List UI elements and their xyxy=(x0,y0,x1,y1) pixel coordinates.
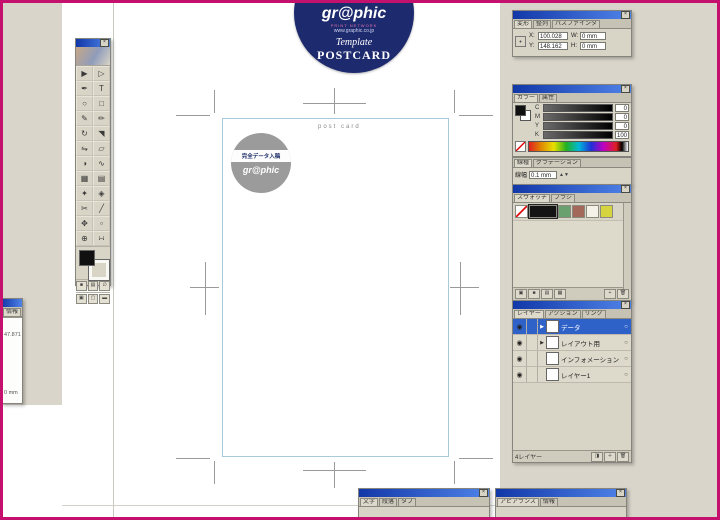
postcard-side-label: post card xyxy=(318,124,361,130)
info-value-2: 0 mm xyxy=(4,390,18,396)
close-icon[interactable]: × xyxy=(616,489,625,497)
stroke-weight-stepper[interactable]: ▲▼ xyxy=(559,172,569,178)
center-trim-mark-right xyxy=(450,287,479,288)
close-icon[interactable]: × xyxy=(621,11,630,19)
postcard-logo-band-text: 完全データ入稿 xyxy=(231,150,291,162)
tool-eyedropper[interactable]: ✦ xyxy=(76,186,93,201)
layer-visibility-eye-icon[interactable]: ◉ xyxy=(513,351,527,366)
stroke-weight-label: 線幅 xyxy=(515,170,527,179)
screen-mode-standard-button[interactable]: ▣ xyxy=(76,294,87,304)
fill-swatch[interactable] xyxy=(79,250,95,266)
channel-label: C xyxy=(535,105,541,111)
badge-product-label: POSTCARD xyxy=(294,49,414,62)
tool-scale[interactable]: ◥ xyxy=(93,126,110,141)
appearance-palette-titlebar[interactable]: × xyxy=(496,489,626,497)
postcard-logo-brand: gr@phic xyxy=(231,165,291,175)
channel-value-field[interactable]: 0 xyxy=(615,113,629,121)
toolbox-banner-image xyxy=(76,47,110,66)
stroke-weight-field[interactable]: 0.1 mm xyxy=(529,171,557,179)
color-spectrum-ramp[interactable] xyxy=(528,141,629,152)
swatches-palette-titlebar[interactable]: × xyxy=(513,185,631,193)
screen-mode-full-menu-button[interactable]: ▢ xyxy=(88,294,99,304)
new-layer-button[interactable]: ＋ xyxy=(604,452,616,462)
delete-swatch-button[interactable]: 🗑 xyxy=(617,289,629,299)
tab-character[interactable]: 文字 xyxy=(360,498,378,506)
layer-name[interactable]: データ xyxy=(561,322,621,332)
center-trim-mark-left xyxy=(190,287,219,288)
channel-label: M xyxy=(535,114,541,120)
close-icon[interactable]: × xyxy=(479,489,488,497)
layer-thumbnail xyxy=(546,336,559,349)
layer-expand-triangle[interactable]: ▶ xyxy=(538,324,546,330)
layer-count-status: 4レイヤー xyxy=(515,452,590,461)
info-palette-fragment: 情報 47.871 0 mm xyxy=(3,298,23,404)
swatch-brown[interactable] xyxy=(572,205,585,218)
layer-target-circle[interactable]: ○ xyxy=(621,372,631,378)
tab-links[interactable]: リンク xyxy=(582,310,606,318)
close-icon[interactable]: × xyxy=(621,85,630,93)
new-swatch-button[interactable]: + xyxy=(604,289,616,299)
channel-slider[interactable] xyxy=(543,131,613,139)
tool-page[interactable]: ▫ xyxy=(93,216,110,231)
layer-lock-cell[interactable] xyxy=(527,367,538,382)
tool-direct-selection[interactable]: ▷ xyxy=(93,66,110,81)
swatch-none[interactable] xyxy=(515,205,528,218)
document-area: post card 完全データ入稿 gr@phic gr@phic PRINT … xyxy=(3,3,717,517)
layer-target-circle[interactable]: ○ xyxy=(621,356,631,362)
layer-lock-cell[interactable] xyxy=(527,351,538,366)
layer-visibility-eye-icon[interactable]: ◉ xyxy=(513,319,527,334)
layer-visibility-eye-icon[interactable]: ◉ xyxy=(513,335,527,350)
trim-mark xyxy=(176,458,210,459)
tool-paintbrush[interactable]: ✏ xyxy=(93,111,110,126)
tab-info-fragment[interactable]: 情報 xyxy=(3,308,21,316)
character-palette: × 文字 段落 タブ xyxy=(358,488,490,517)
channel-value-field[interactable]: 0 xyxy=(615,122,629,130)
tool-pen[interactable]: ✒ xyxy=(76,81,93,96)
tool-graph[interactable]: ▦ xyxy=(76,171,93,186)
layer-thumbnail xyxy=(546,352,559,365)
layer-lock-cell[interactable] xyxy=(527,319,538,334)
show-pattern-swatches-button[interactable]: ▦ xyxy=(554,289,566,299)
color-palette: × カラー 属性 C0M0Y0K100 xyxy=(512,84,632,157)
layer-target-circle[interactable]: ○ xyxy=(621,340,631,346)
swatch-white[interactable] xyxy=(586,205,599,218)
transform-palette: × 変形 整列 パスファインダ X: 100.028 Y: 148.162 W:… xyxy=(512,10,632,57)
tool-paint-bucket[interactable]: ◈ xyxy=(93,186,110,201)
delete-layer-button[interactable]: 🗑 xyxy=(617,452,629,462)
trim-mark xyxy=(176,115,210,116)
show-color-swatches-button[interactable]: ■ xyxy=(528,289,540,299)
close-icon[interactable]: × xyxy=(621,301,630,309)
color-palette-titlebar[interactable]: × xyxy=(513,85,631,93)
stroke-palette: 線種 グラデーション 線幅 0.1 mm ▲▼ xyxy=(512,157,632,185)
swatches-scrollbar[interactable] xyxy=(623,203,631,289)
tool-rectangle[interactable]: □ xyxy=(93,96,110,111)
trim-mark xyxy=(214,461,215,484)
tool-pencil[interactable]: ✎ xyxy=(76,111,93,126)
tab-tabs[interactable]: タブ xyxy=(398,498,416,506)
tab-attributes[interactable]: 属性 xyxy=(539,94,557,102)
layer-expand-triangle[interactable]: ▶ xyxy=(538,340,546,346)
swatch-yellow[interactable] xyxy=(600,205,613,218)
layer-visibility-eye-icon[interactable]: ◉ xyxy=(513,367,527,382)
reference-point-locator[interactable] xyxy=(515,36,526,47)
tab-stroke[interactable]: 線種 xyxy=(514,159,532,167)
center-trim-mark-right xyxy=(460,262,461,315)
color-fill-stroke-indicator[interactable] xyxy=(515,105,531,121)
layer-row[interactable]: ◉▶レイアウト用○ xyxy=(513,335,631,351)
trim-mark xyxy=(459,115,493,116)
tool-gradient[interactable]: ▤ xyxy=(93,171,110,186)
tab-color[interactable]: カラー xyxy=(514,94,538,102)
tab-brushes[interactable]: ブラシ xyxy=(551,194,575,202)
center-trim-mark-top xyxy=(334,88,335,114)
w-label: W: xyxy=(571,33,579,39)
layer-target-circle[interactable]: ○ xyxy=(621,324,631,330)
h-field[interactable]: 0 mm xyxy=(580,42,606,50)
tool-hand[interactable]: ✥ xyxy=(76,216,93,231)
tool-autotrace[interactable]: ∿ xyxy=(93,156,110,171)
trim-mark xyxy=(454,90,455,113)
appearance-palette: × アピアランス 情報 xyxy=(495,488,627,517)
x-field[interactable]: 100.028 xyxy=(538,32,568,40)
character-palette-titlebar[interactable]: × xyxy=(359,489,489,497)
show-gradient-swatches-button[interactable]: ▤ xyxy=(541,289,553,299)
swatch-black[interactable] xyxy=(529,205,557,218)
tab-pathfinder[interactable]: パスファインダ xyxy=(552,20,600,28)
fill-stroke-indicator[interactable] xyxy=(76,246,110,279)
swatches-palette: × スウォッチ ブラシ ▣ ■ ▤ ▦ + 🗑 xyxy=(512,184,632,301)
y-label: Y: xyxy=(529,43,537,49)
tool-ellipse[interactable]: ○ xyxy=(76,96,93,111)
postcard-logo-circle[interactable]: 完全データ入稿 gr@phic xyxy=(231,133,291,193)
layers-palette: × レイヤー アクション リンク ◉▶データ○◉▶レイアウト用○◉インフォメーシ… xyxy=(512,300,632,463)
tool-shear[interactable]: ▱ xyxy=(93,141,110,156)
layer-thumbnail xyxy=(546,320,559,333)
channel-slider[interactable] xyxy=(543,113,613,121)
layer-row[interactable]: ◉▶データ○ xyxy=(513,319,631,335)
tool-palette: × ▶▷✒T○□✎✏↻◥⇋▱◑∿▦▤✦◈✂╱✥▫⊕∺ ■ ▤ ∅ ▣ ▢ ▬ xyxy=(75,38,111,286)
layer-name[interactable]: レイヤー1 xyxy=(561,370,621,380)
channel-label: K xyxy=(535,132,541,138)
tool-type[interactable]: T xyxy=(93,81,110,96)
gradient-mode-button[interactable]: ▤ xyxy=(88,281,99,291)
layer-thumbnail xyxy=(546,368,559,381)
graphic-brand-badge: gr@phic PRINT NETWORK www.graphic.co.jp … xyxy=(294,3,414,73)
tool-rotate[interactable]: ↻ xyxy=(76,126,93,141)
tool-palette-titlebar[interactable]: × xyxy=(76,39,110,47)
illustrator-workspace-screenshot: post card 完全データ入稿 gr@phic gr@phic PRINT … xyxy=(0,0,720,520)
layers-palette-titlebar[interactable]: × xyxy=(513,301,631,309)
color-mode-button[interactable]: ■ xyxy=(76,281,87,291)
close-icon[interactable]: × xyxy=(621,185,630,193)
tab-transform[interactable]: 変形 xyxy=(514,20,532,28)
tab-layers[interactable]: レイヤー xyxy=(514,310,544,318)
tool-blend[interactable]: ◑ xyxy=(76,156,93,171)
tab-swatches[interactable]: スウォッチ xyxy=(514,194,550,202)
transform-palette-titlebar[interactable]: × xyxy=(513,11,631,19)
tab-gradient[interactable]: グラデーション xyxy=(533,159,581,167)
tool-zoom[interactable]: ⊕ xyxy=(76,231,93,246)
make-clipping-mask-button[interactable]: ◨ xyxy=(591,452,603,462)
center-trim-mark-bottom xyxy=(334,462,335,488)
badge-brand-text: gr@phic xyxy=(294,5,414,23)
channel-label: Y xyxy=(535,123,541,129)
trim-mark xyxy=(454,461,455,484)
swatches-empty-area xyxy=(513,220,631,287)
center-trim-mark-left xyxy=(205,262,206,315)
channel-slider[interactable] xyxy=(543,122,613,130)
trim-mark xyxy=(459,458,493,459)
layer-name[interactable]: インフォメーション xyxy=(561,354,621,364)
show-all-swatches-button[interactable]: ▣ xyxy=(515,289,527,299)
tab-info[interactable]: 情報 xyxy=(540,498,558,506)
tab-paragraph[interactable]: 段落 xyxy=(379,498,397,506)
layer-row[interactable]: ◉レイヤー1○ xyxy=(513,367,631,383)
close-icon[interactable]: × xyxy=(100,39,109,47)
badge-url: www.graphic.co.jp xyxy=(294,28,414,35)
layer-row[interactable]: ◉インフォメーション○ xyxy=(513,351,631,367)
x-label: X: xyxy=(529,33,537,39)
info-palette-content: 47.871 0 mm xyxy=(3,317,22,403)
page-boundary-guide-vertical xyxy=(113,3,114,517)
y-field[interactable]: 148.162 xyxy=(538,42,568,50)
tab-actions[interactable]: アクション xyxy=(545,310,581,318)
channel-value-field[interactable]: 0 xyxy=(615,104,629,112)
trim-mark xyxy=(214,90,215,113)
channel-slider[interactable] xyxy=(543,104,613,112)
screen-mode-full-button[interactable]: ▬ xyxy=(99,294,110,304)
h-label: H: xyxy=(571,43,579,49)
w-field[interactable]: 0 mm xyxy=(580,32,606,40)
tool-reflect[interactable]: ⇋ xyxy=(76,141,93,156)
none-color-chip[interactable] xyxy=(515,141,526,152)
layer-lock-cell[interactable] xyxy=(527,335,538,350)
swatch-green[interactable] xyxy=(558,205,571,218)
tool-knife[interactable]: ╱ xyxy=(93,201,110,216)
tab-align[interactable]: 整列 xyxy=(533,20,551,28)
info-palette-titlebar[interactable] xyxy=(3,299,22,307)
info-value-1: 47.871 xyxy=(4,332,21,338)
tool-measure[interactable]: ∺ xyxy=(93,231,110,246)
channel-value-field[interactable]: 100 xyxy=(615,131,629,139)
none-mode-button[interactable]: ∅ xyxy=(99,281,110,291)
layer-name[interactable]: レイアウト用 xyxy=(561,338,621,348)
tool-selection[interactable]: ▶ xyxy=(76,66,93,81)
tab-appearance[interactable]: アピアランス xyxy=(497,498,539,506)
tool-scissors[interactable]: ✂ xyxy=(76,201,93,216)
